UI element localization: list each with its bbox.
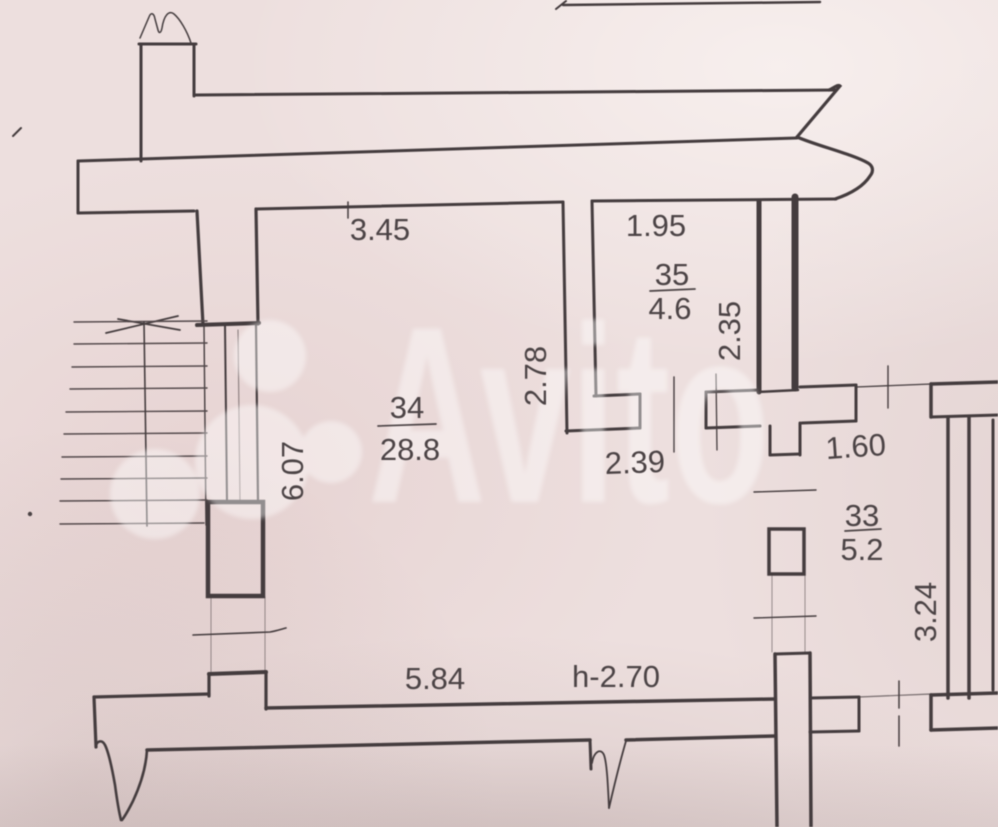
svg-text:2.78: 2.78 [518,346,553,406]
svg-text:1.95: 1.95 [626,208,686,243]
svg-text:34: 34 [390,390,424,425]
svg-text:3.24: 3.24 [908,582,943,642]
svg-text:4.6: 4.6 [648,291,691,326]
svg-text:5.84: 5.84 [405,661,465,696]
svg-text:35: 35 [655,257,689,292]
svg-text:5.2: 5.2 [840,532,883,567]
svg-text:2.39: 2.39 [604,444,666,481]
svg-text:2.35: 2.35 [712,301,747,361]
svg-text:33: 33 [845,498,879,533]
svg-text:1.60: 1.60 [824,427,887,466]
svg-text:6.07: 6.07 [275,441,310,501]
svg-text:3.45: 3.45 [350,212,410,247]
svg-text:28.8: 28.8 [380,432,440,467]
svg-text:Avito: Avito [368,275,770,556]
svg-text:h-2.70: h-2.70 [572,659,660,694]
